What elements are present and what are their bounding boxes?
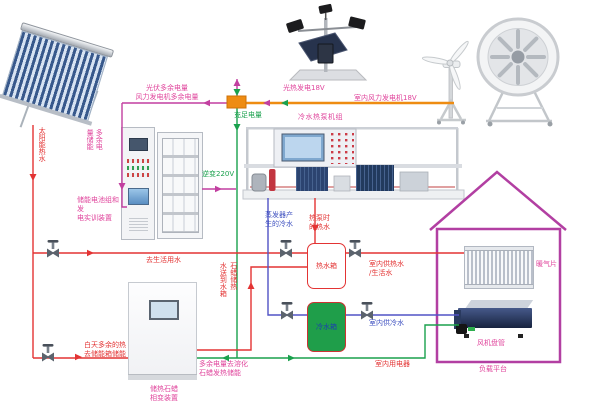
heat-pump-unit xyxy=(243,127,464,199)
cold-water-tank: 冷水箱 xyxy=(307,302,346,352)
sufficient-power-label: 充足电量 xyxy=(234,111,262,120)
energy-system-diagram: 热水箱 冷水箱 光伏多余电量 风力发电机多余电量 充足电量 光热发电18V 室内… xyxy=(0,0,600,419)
daytime-excess-heat-label: 白天多余的热 去储能箱储能 xyxy=(84,341,126,359)
cold-water-tank-label: 冷水箱 xyxy=(316,322,337,332)
solar-hot-water-label: 太阳能热水 xyxy=(37,127,46,167)
hot-water-tank: 热水箱 xyxy=(307,243,346,289)
paraffin-to-tank-label: 水送到水箱 石蜡储热 xyxy=(219,262,238,297)
valve-paraffin-feed xyxy=(42,344,54,362)
pv-tracker xyxy=(286,4,366,80)
load-platform-label: 负载平台 xyxy=(479,365,507,374)
paraffin-unit-label: 储热石蜡 相变装置 xyxy=(144,385,184,403)
valve-solar-domestic xyxy=(47,240,59,258)
wind-turbine xyxy=(422,40,470,125)
radiator-label: 暖气片 xyxy=(536,260,557,269)
receiver-tank xyxy=(269,169,276,191)
valve-cold-tank-inlet xyxy=(281,302,293,320)
indoor-cold-supply-label: 室内供冷水 xyxy=(369,319,404,328)
pv-output-label: 光热发电18V xyxy=(283,84,325,93)
heat-pump-label: 冷水热泵机组 xyxy=(298,113,343,122)
evaporator-cold-label: 蒸发器产 生的冷水 xyxy=(265,211,293,229)
melt-paraffin-label: 多余电量去溶化 石蜡发热储能 xyxy=(199,360,255,378)
wind-output-label: 室内风力发电机18V xyxy=(354,94,417,103)
battery-cabinet-label: 储能电池组和发 电实训装置 xyxy=(77,196,125,222)
cold-water-lines xyxy=(268,198,459,315)
excess-storage-label: 多余电量储能 xyxy=(85,129,103,155)
indoor-hot-supply-label: 室内供热水 /生活水 xyxy=(369,260,404,278)
fan-coil-label: 风机盘管 xyxy=(477,339,505,348)
excess-power-label: 光伏多余电量 风力发电机多余电量 xyxy=(126,84,208,102)
power-junction-box xyxy=(227,96,246,108)
indoor-appliance-label: 室内用电器 xyxy=(375,360,410,369)
wind-tunnel-fan xyxy=(478,19,558,127)
valve-hot-tank-outlet xyxy=(349,240,361,258)
heat-pump-hot-label: 热泵时 的热水 xyxy=(309,214,330,232)
valve-hot-tank-inlet xyxy=(280,240,292,258)
domestic-water-label: 去生活用水 xyxy=(146,256,181,265)
valve-cold-tank-outlet xyxy=(361,302,373,320)
compressor xyxy=(252,174,266,191)
inverter-label: 逆变220V xyxy=(202,170,234,179)
heat-pump-buttons xyxy=(330,132,354,164)
hot-water-tank-label: 热水箱 xyxy=(316,261,337,271)
